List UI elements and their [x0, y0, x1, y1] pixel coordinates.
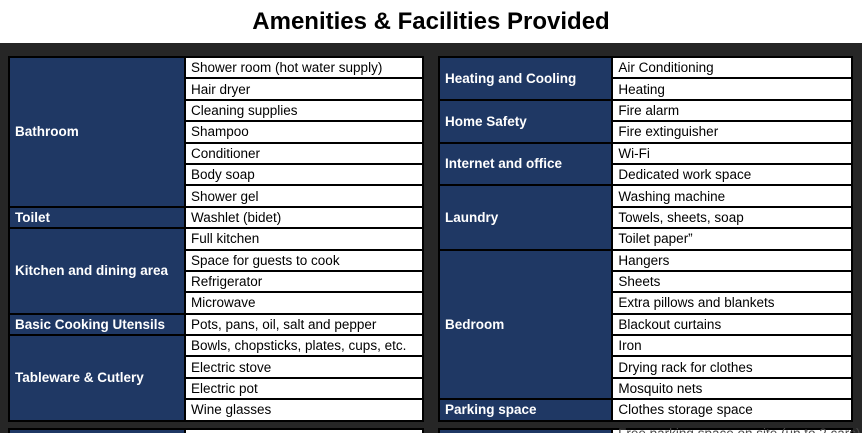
- item-cell: Shampoo: [185, 121, 423, 142]
- amenities-table-left-continuation: [8, 428, 424, 433]
- category-cell-bathroom: Bathroom: [9, 57, 185, 207]
- item-cell: Body soap: [185, 164, 423, 185]
- table-row: Parking spaceClothes storage space: [439, 399, 852, 420]
- amenities-table-right-continuation: Free parking space on site (up to 2 cars…: [438, 428, 853, 433]
- table-row: Kitchen and dining areaFull kitchen: [9, 228, 423, 249]
- page-title: Amenities & Facilities Provided: [0, 0, 862, 43]
- category-cell-home-safety: Home Safety: [439, 100, 612, 143]
- category-cell-tableware-cutlery: Tableware & Cutlery: [9, 335, 185, 421]
- category-cell-internet-and-office: Internet and office: [439, 143, 612, 186]
- amenities-table-left: BathroomShower room (hot water supply)Ha…: [8, 56, 424, 422]
- item-cell: Heating: [612, 78, 852, 99]
- item-cell: Hair dryer: [185, 78, 423, 99]
- item-cell: Microwave: [185, 292, 423, 313]
- item-cell: Hangers: [612, 250, 852, 271]
- item-cell: Dedicated work space: [612, 164, 852, 185]
- item-cell: Space for guests to cook: [185, 250, 423, 271]
- category-cell-kitchen-and-dining-area: Kitchen and dining area: [9, 228, 185, 314]
- item-cell: Electric stove: [185, 356, 423, 377]
- category-cell-basic-cooking-utensils: Basic Cooking Utensils: [9, 314, 185, 335]
- item-cell: Air Conditioning: [612, 57, 852, 78]
- category-cell-parking-space: Parking space: [439, 399, 612, 420]
- item-cell-cutoff: [185, 429, 423, 433]
- item-cell: Drying rack for clothes: [612, 356, 852, 377]
- item-cell: Shower room (hot water supply): [185, 57, 423, 78]
- table-row: Free parking space on site (up to 2 cars…: [439, 429, 852, 433]
- item-cell: Refrigerator: [185, 271, 423, 292]
- cutoff-item-text: Free parking space on site (up to 2 cars…: [618, 425, 860, 433]
- table-row: Internet and officeWi-Fi: [439, 143, 852, 164]
- item-cell: Wi-Fi: [612, 143, 852, 164]
- table-frame: BathroomShower room (hot water supply)Ha…: [0, 43, 862, 433]
- item-cell: Clothes storage space: [612, 399, 852, 420]
- table-row: BedroomHangers: [439, 250, 852, 271]
- right-column: Heating and CoolingAir ConditioningHeati…: [438, 56, 853, 433]
- item-cell: Fire extinguisher: [612, 121, 852, 142]
- table-row: Basic Cooking UtensilsPots, pans, oil, s…: [9, 314, 423, 335]
- item-cell: Conditioner: [185, 143, 423, 164]
- category-cell-heating-and-cooling: Heating and Cooling: [439, 57, 612, 100]
- item-cell: Shower gel: [185, 185, 423, 206]
- item-cell: Fire alarm: [612, 100, 852, 121]
- amenities-table-right: Heating and CoolingAir ConditioningHeati…: [438, 56, 853, 422]
- item-cell: Wine glasses: [185, 399, 423, 420]
- item-cell: Pots, pans, oil, salt and pepper: [185, 314, 423, 335]
- table-row: Home SafetyFire alarm: [439, 100, 852, 121]
- item-cell: Full kitchen: [185, 228, 423, 249]
- table-row: ToiletWashlet (bidet): [9, 207, 423, 228]
- category-cell-laundry: Laundry: [439, 185, 612, 249]
- item-cell: Iron: [612, 335, 852, 356]
- table-row: BathroomShower room (hot water supply): [9, 57, 423, 78]
- category-cell-cutoff: [439, 429, 612, 433]
- item-cell: Towels, sheets, soap: [612, 207, 852, 228]
- table-row: [9, 429, 423, 433]
- category-cell-bedroom: Bedroom: [439, 250, 612, 400]
- item-cell: Washlet (bidet): [185, 207, 423, 228]
- item-cell: Toilet paper”: [612, 228, 852, 249]
- item-cell: Sheets: [612, 271, 852, 292]
- amenities-page: Amenities & Facilities Provided Bathroom…: [0, 0, 862, 433]
- left-column: BathroomShower room (hot water supply)Ha…: [8, 56, 424, 433]
- item-cell: Blackout curtains: [612, 314, 852, 335]
- item-cell: Mosquito nets: [612, 378, 852, 399]
- item-cell: Extra pillows and blankets: [612, 292, 852, 313]
- item-cell: Bowls, chopsticks, plates, cups, etc.: [185, 335, 423, 356]
- table-row: Tableware & CutleryBowls, chopsticks, pl…: [9, 335, 423, 356]
- category-cell-cutoff: [9, 429, 185, 433]
- item-cell: Cleaning supplies: [185, 100, 423, 121]
- item-cell-cutoff: Free parking space on site (up to 2 cars…: [612, 429, 852, 433]
- item-cell: Electric pot: [185, 378, 423, 399]
- item-cell: Washing machine: [612, 185, 852, 206]
- table-row: LaundryWashing machine: [439, 185, 852, 206]
- table-row: Heating and CoolingAir Conditioning: [439, 57, 852, 78]
- category-cell-toilet: Toilet: [9, 207, 185, 228]
